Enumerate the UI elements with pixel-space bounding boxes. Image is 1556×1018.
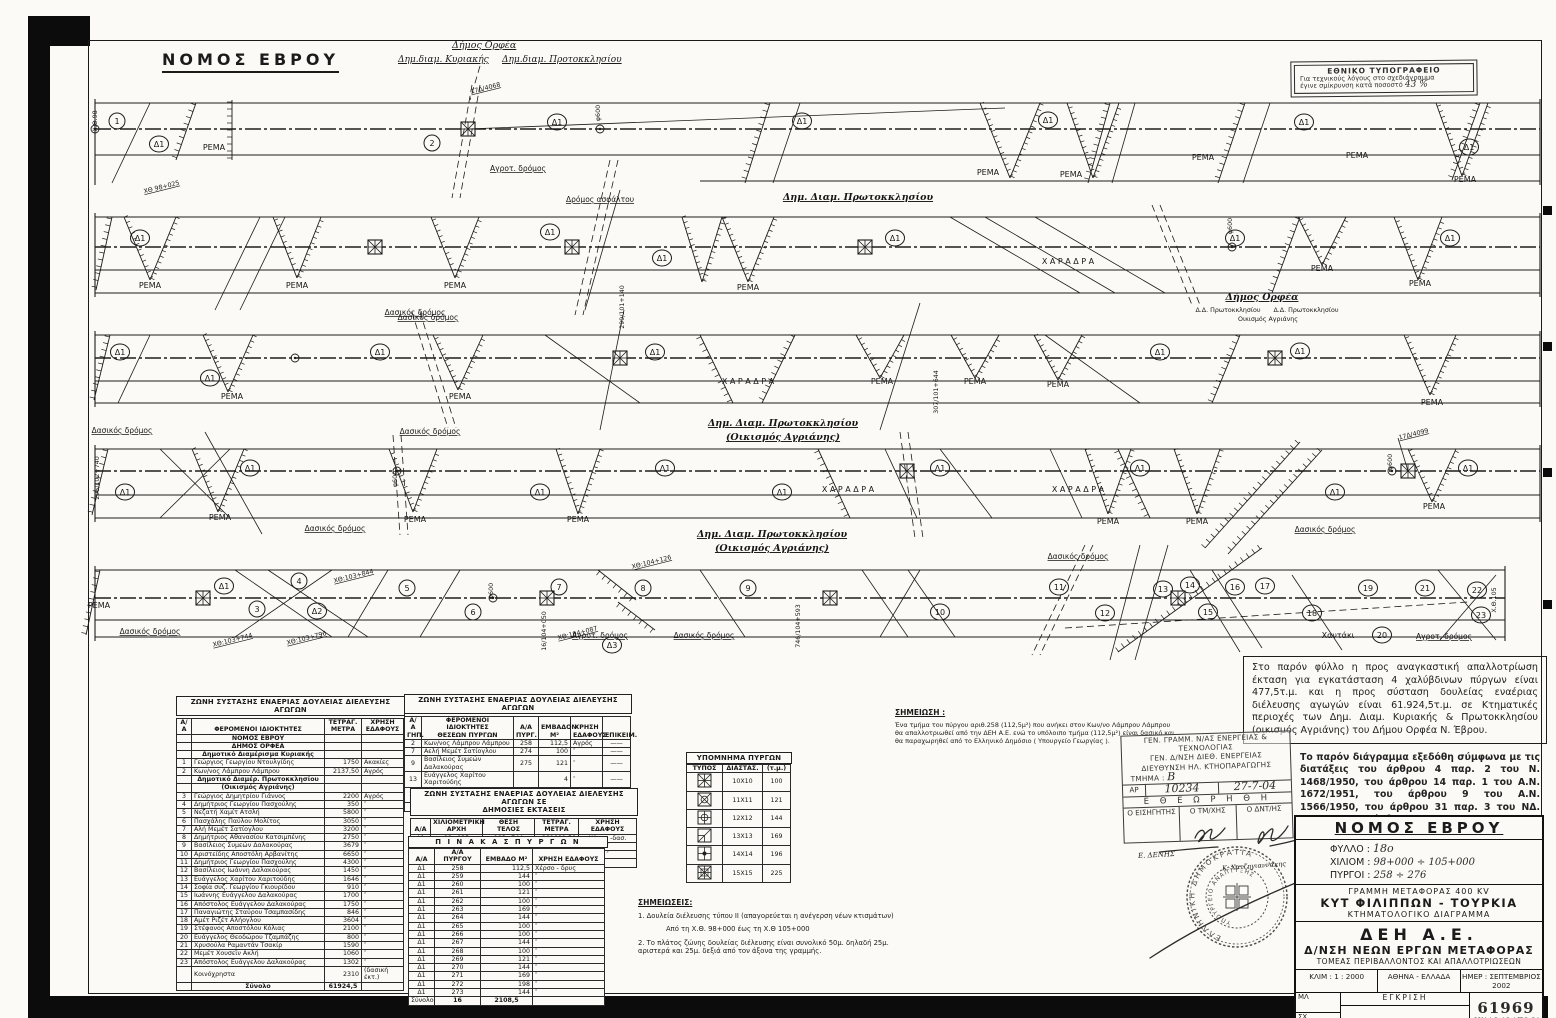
table-cell: 11 [177, 859, 192, 867]
linework [223, 499, 227, 501]
table-cell: 2100 [325, 925, 362, 933]
table-cell: ΔΗΜΟΣ ΟΡΦΕΑ [192, 742, 325, 750]
table-cell: 4 [539, 772, 571, 788]
linework [1481, 123, 1485, 124]
linework [1281, 456, 1285, 459]
table-row: Σύνολο61924,5 [177, 982, 404, 990]
linework [864, 348, 867, 350]
table-cell: ″ [362, 925, 404, 933]
route-strip: Δ1ΡΕΜΑΡΕΜΑΡΕΜΑΔ1Δρόμος ασφάλτουΔ1ΡΕΜΑΔημ… [95, 192, 1540, 317]
table-cell: 16 [435, 997, 481, 1005]
linework [1229, 566, 1232, 570]
linework: Δ1 [1463, 464, 1474, 473]
linework [1286, 451, 1290, 454]
table-cell: Δ1 [409, 864, 435, 872]
table-cell: 13Χ13 [723, 828, 763, 846]
linework [771, 224, 775, 225]
linework [1229, 348, 1234, 350]
linework [1103, 110, 1108, 111]
linework [171, 228, 175, 230]
table-cell: Δ1 [409, 872, 435, 880]
linework [722, 217, 748, 282]
linework [167, 239, 171, 241]
strip-label: Χαντάκι [1322, 631, 1355, 640]
linework: Δ1 [1330, 488, 1341, 497]
linework [880, 335, 904, 378]
linework [1436, 103, 1462, 176]
linework [1062, 373, 1066, 375]
linework [1243, 103, 1270, 183]
table-cell [687, 809, 723, 827]
table-cell: Δ1 [409, 897, 435, 905]
linework: 23 [1476, 611, 1486, 620]
linework [1111, 506, 1115, 507]
strip-label: ΡΕΜΑ [1423, 502, 1446, 511]
table-cell: ″ [362, 917, 404, 925]
linework [1069, 107, 1073, 108]
ml-cell: ΜΛ [1296, 993, 1340, 1013]
linework [1099, 124, 1104, 125]
linework [1091, 466, 1095, 467]
table-cell: 1450 [325, 867, 362, 875]
table-header-cell: ΦΕΡΟΜΕΝΟΙ ΙΔΙΟΚΤΗΤΕΣ [192, 719, 325, 735]
linework [763, 110, 768, 111]
table-cell: 144 [763, 809, 791, 827]
linework [420, 570, 460, 637]
strip-label: ΡΕΜΑ [444, 281, 467, 290]
linework [1065, 368, 1069, 370]
strip-label: (Οικισμός Αγριάνης) [715, 543, 829, 554]
tower-legend-title: ΥΠΟΜΝΗΜΑ ΠΥΡΓΩΝ [686, 752, 792, 764]
linework [1268, 289, 1273, 291]
table-cell: ″ [533, 889, 605, 897]
linework [1017, 159, 1021, 160]
table-cell: Δ1 [409, 972, 435, 980]
linework [693, 250, 697, 251]
linework [90, 591, 95, 592]
linework [1176, 454, 1180, 455]
linework [1221, 367, 1226, 369]
linework [1200, 506, 1204, 507]
linework [1290, 445, 1294, 448]
linework [1273, 276, 1278, 278]
linework: Δ1 [657, 254, 668, 263]
linework [1029, 132, 1033, 133]
linework [558, 454, 562, 455]
linework [1092, 151, 1097, 152]
linework [210, 350, 214, 352]
linework [581, 506, 585, 507]
linework [104, 232, 109, 233]
circled-marker: 16 [1226, 579, 1245, 595]
linework [1010, 103, 1040, 178]
strip-label: 746/104+593 [795, 604, 802, 647]
table-cell: 8 [177, 834, 192, 842]
table-cell: ″ [533, 897, 605, 905]
linework: 12 [1100, 609, 1110, 618]
table-header-cell: (τ.μ.) [763, 765, 791, 773]
table-cell: 121 [481, 889, 533, 897]
linework [1217, 170, 1222, 172]
linework [1424, 482, 1428, 484]
linework [1228, 136, 1233, 138]
strip-label: Δασικός δρόμος [120, 627, 181, 636]
linework [1470, 116, 1475, 118]
tower-type-2-icon [697, 792, 712, 809]
table-row: Δ1271169″ [409, 972, 605, 980]
linework [1292, 224, 1297, 226]
linework [96, 266, 101, 267]
linework [575, 505, 579, 506]
table-cell: ″ [362, 883, 404, 891]
tower-type-5-icon [697, 846, 712, 863]
strip-label: ΡΕΜΑ [449, 392, 472, 401]
linework [1451, 145, 1455, 146]
linework [884, 371, 887, 373]
linework [1051, 366, 1055, 368]
table-cell: ″ [533, 922, 605, 930]
linework [1218, 456, 1222, 457]
linework [300, 271, 304, 272]
table-cell: 10Χ10 [723, 773, 763, 791]
table-row: ΔΗΜΟΣ ΟΡΦΕΑ [177, 742, 404, 750]
table-cell: (δασική έκτ.) [362, 966, 404, 982]
linework [570, 488, 574, 489]
linework [560, 460, 564, 461]
linework [1129, 456, 1133, 457]
circled-marker: Δ1 [1459, 460, 1478, 476]
linework [1033, 120, 1037, 121]
table-cell: Βασίλειος Συμεών Δαλακούρας [422, 756, 514, 772]
linework [450, 370, 454, 372]
linework: Δ1 [1445, 234, 1456, 243]
linework [186, 116, 191, 118]
linework [696, 337, 700, 339]
linework [1065, 602, 1468, 628]
table-cell: 21 [177, 942, 192, 950]
circled-marker: Δ1 [241, 460, 260, 476]
linework [1455, 451, 1459, 453]
table-cell: 225 [763, 864, 791, 882]
linework [129, 227, 133, 229]
linework [1109, 131, 1113, 132]
table-cell: ″ [533, 872, 605, 880]
linework [204, 475, 208, 477]
linework [965, 359, 968, 361]
table-cell: ″ [362, 842, 404, 850]
linework [83, 626, 88, 627]
linework [717, 234, 721, 235]
linework [1215, 176, 1220, 178]
linework [760, 252, 764, 253]
linework [1328, 252, 1332, 254]
circled-marker: Δ1 [531, 484, 550, 500]
linework [471, 237, 475, 238]
table-cell: 3200 [325, 825, 362, 833]
title-block-signatures: ΜΛ ΣΧ ΕΛ ΕΓΚΡΙΣΗ 61969 ΦΥΛΛΟ 18 ΑΠΟ 21 [1296, 993, 1542, 1018]
linework [1487, 106, 1491, 107]
linework [600, 310, 624, 430]
linework [93, 578, 98, 579]
note-item: 2. Το πλάτος ζώνης δουλείας διέλευσης εί… [638, 939, 968, 955]
linework [1088, 163, 1092, 164]
linework [1436, 233, 1440, 234]
linework [1418, 217, 1442, 280]
linework [743, 268, 747, 269]
linework [1082, 336, 1086, 338]
linework [1116, 648, 1119, 652]
linework [1079, 135, 1083, 136]
table-cell: 100 [539, 748, 571, 756]
table-row: Δ1273144″ [409, 989, 605, 997]
linework: 19 [1363, 584, 1373, 593]
linework [1011, 176, 1015, 177]
linework [545, 335, 640, 403]
linework [1421, 477, 1425, 479]
linework [1310, 240, 1314, 242]
table-cell: 6650 [325, 850, 362, 858]
district-right-label: Δημ.διαμ. Προτοκκλησίου [502, 55, 622, 65]
linework [1040, 545, 1093, 655]
linework [691, 245, 695, 246]
linework [1228, 450, 1322, 554]
linework [1434, 239, 1438, 240]
table-cell [687, 846, 723, 864]
linework [1160, 205, 1200, 305]
table-row: Δ1258112,5Χέρσο - δρυς [409, 864, 605, 872]
linework [1405, 337, 1409, 339]
linework [1402, 237, 1406, 238]
linework [481, 339, 485, 341]
linework [1312, 453, 1316, 456]
linework [153, 273, 157, 275]
table-header-cell: ΘΕΣΗ ΤΕΛΟΣ [483, 819, 535, 835]
linework [1212, 578, 1215, 582]
linework [1050, 449, 1082, 518]
table-cell: ″ [533, 914, 605, 922]
table-row: 8Δημήτριος Αθανασίου Κατσιμπένης2750″ [177, 834, 404, 842]
table-cell: 1060 [325, 950, 362, 958]
table-cell: 23 [177, 958, 192, 966]
linework [1443, 366, 1447, 368]
linework [727, 229, 731, 230]
notes-list: ΣΗΜΕΙΩΣΕΙΣ: 1. Δουλεία διέλευσης τύπου Ι… [638, 898, 968, 955]
table-cell: Πασχάλης Παύλου Μολίτος [192, 817, 325, 825]
linework [1103, 148, 1107, 149]
linework [447, 365, 451, 367]
table-cell: Δημοτικό Διαμέρισμα Κυριακής [192, 751, 325, 759]
table-cell: 1 [177, 759, 192, 767]
linework [1226, 899, 1235, 908]
linework [988, 355, 991, 357]
table-cell: 12Χ12 [723, 809, 763, 827]
region-title: ΝΟΜΟΣ ΕΒΡΟΥ [162, 50, 339, 73]
table-cell: Αγρός [362, 792, 404, 800]
strip-label: ΡΕΜΑ [1454, 175, 1477, 184]
strip-label: ΡΕΜΑ [209, 513, 232, 522]
table-cell [362, 776, 404, 784]
table-cell [533, 997, 605, 1005]
notes-list-title: ΣΗΜΕΙΩΣΕΙΣ: [638, 898, 968, 907]
linework [908, 570, 955, 637]
linework [1231, 130, 1236, 132]
linework [279, 230, 283, 231]
table-cell: 196 [763, 846, 791, 864]
linework [985, 217, 1115, 293]
linework [1123, 473, 1127, 474]
linework [702, 349, 706, 351]
circled-marker: 17 [1256, 578, 1275, 594]
transmission-line-label: ΓΡΑΜΜΗ ΜΕΤΑΦΟΡΑΣ 400 KV [1296, 887, 1542, 896]
strip-label: ΡΕΜΑ [1409, 279, 1432, 288]
linework [406, 492, 410, 493]
table-cell: ″ [571, 756, 603, 772]
linework [478, 220, 482, 221]
table-cell: Δ1 [409, 989, 435, 997]
linework [1240, 557, 1243, 561]
linework [1043, 350, 1047, 352]
linework [1135, 495, 1140, 497]
table-cell: 5 [177, 809, 192, 817]
table-cell: 268 [435, 947, 481, 955]
linework [184, 123, 189, 125]
linework [1035, 115, 1039, 116]
linework [1216, 529, 1220, 532]
note-single-title: ΣΗΜΕΙΩΣΗ : [895, 708, 1225, 717]
linework [1295, 440, 1299, 443]
strip-label: Αγροτ. δρόμος [1416, 632, 1472, 641]
linework [968, 364, 971, 366]
linework [1121, 478, 1125, 479]
table-cell: Δημήτριος Γεωργίου Πασχούλης [192, 859, 325, 867]
table-row: 17Παναγιώτης Σταύρου Τσαμπασίδης846″ [177, 908, 404, 916]
linework [1439, 111, 1443, 112]
linework [1421, 273, 1425, 274]
linework [1172, 607, 1175, 611]
table-row: 13Ευάγγελος Χαρίτου Χαριτούδης1646″ [177, 875, 404, 883]
linework [232, 477, 236, 479]
linework [1276, 461, 1280, 464]
linework [1409, 254, 1413, 255]
linework [188, 110, 193, 112]
table-cell [177, 784, 192, 792]
table-cell: 3679 [325, 842, 362, 850]
linework [1108, 449, 1131, 514]
linework [1225, 518, 1229, 521]
linework [599, 128, 601, 130]
strip-label: Δασικός δρόμος [1295, 525, 1356, 534]
linework [1013, 171, 1017, 172]
linework [758, 258, 762, 259]
linework: Δ2 [312, 607, 323, 616]
tower-symbol-icon [368, 240, 382, 254]
linework [1111, 125, 1115, 126]
linework [951, 335, 975, 378]
linework [1081, 141, 1085, 142]
circled-marker: 21 [1416, 580, 1435, 596]
linework [1447, 355, 1451, 357]
table-cell: 100 [481, 947, 533, 955]
linework [118, 335, 150, 403]
linework [1090, 158, 1095, 159]
table-cell: Δημήτριος Γεωργίου Πασχούλης [192, 800, 325, 808]
tower-type-6-icon [697, 865, 712, 882]
linework [418, 499, 422, 500]
table-cell: Ευάγγελος Χαρίτου Χαριτούδης [192, 875, 325, 883]
linework [452, 376, 456, 378]
linework [1105, 505, 1109, 506]
table-row: Δ1272198″ [409, 980, 605, 988]
linework [736, 251, 740, 252]
linework [450, 264, 454, 265]
linework [702, 217, 722, 282]
linework [771, 372, 775, 374]
strip-label: ΡΕΜΑ [871, 377, 894, 386]
linework [1344, 220, 1348, 222]
linework [744, 170, 749, 171]
table-cell: ″ [362, 809, 404, 817]
tower-symbol-icon [1268, 351, 1282, 365]
tower-type-1-icon [697, 773, 712, 790]
linework [147, 271, 151, 273]
company-name: ΔΕΗ Α.Ε. [1296, 925, 1542, 944]
linework [1452, 344, 1456, 346]
table-cell: 2108,5 [481, 997, 533, 1005]
linework [1192, 499, 1196, 500]
table-row: 5Νεζατή Χαμίτ Ατσλή5800″ [177, 809, 404, 817]
linework [769, 230, 773, 231]
table-row: 2Κων/νος Λάμπρου Λάμπρου2137,50Αγρός [177, 767, 404, 775]
linework [1422, 375, 1426, 377]
linework [307, 254, 311, 255]
linework [1289, 479, 1293, 482]
linework [1233, 123, 1238, 125]
table-cell: ″ [533, 947, 605, 955]
linework [1426, 488, 1430, 490]
linework [238, 368, 242, 370]
strip-label: ΡΕΜΑ [139, 281, 162, 290]
linework [1180, 466, 1184, 467]
table-row: Δ1262100″ [409, 897, 605, 905]
linework [1432, 449, 1456, 502]
linework [1262, 477, 1266, 480]
table-cell: Αγρός [571, 739, 603, 747]
linework [1101, 117, 1106, 118]
table-cell: ″ [362, 825, 404, 833]
linework [1141, 508, 1146, 510]
linework [588, 484, 592, 485]
table-cell: 846 [325, 908, 362, 916]
linework [1432, 244, 1436, 245]
linework [1469, 157, 1473, 158]
strip-label: ΡΕΜΑ [1097, 517, 1120, 526]
linework [435, 454, 439, 455]
linework [274, 219, 278, 220]
linework [1459, 167, 1463, 168]
table-cell: 262 [435, 897, 481, 905]
linework [420, 312, 456, 428]
linework: Δ1 [545, 228, 556, 237]
linework [594, 467, 598, 468]
table-cell: Βασίλειος Συμεών Δαλακούρας [192, 842, 325, 850]
linework [235, 471, 239, 473]
linework [103, 343, 108, 344]
linework [1096, 170, 1100, 171]
linework [1429, 493, 1433, 495]
linework [445, 252, 449, 253]
linework [1247, 526, 1251, 529]
table-cell: 258 [514, 739, 539, 747]
